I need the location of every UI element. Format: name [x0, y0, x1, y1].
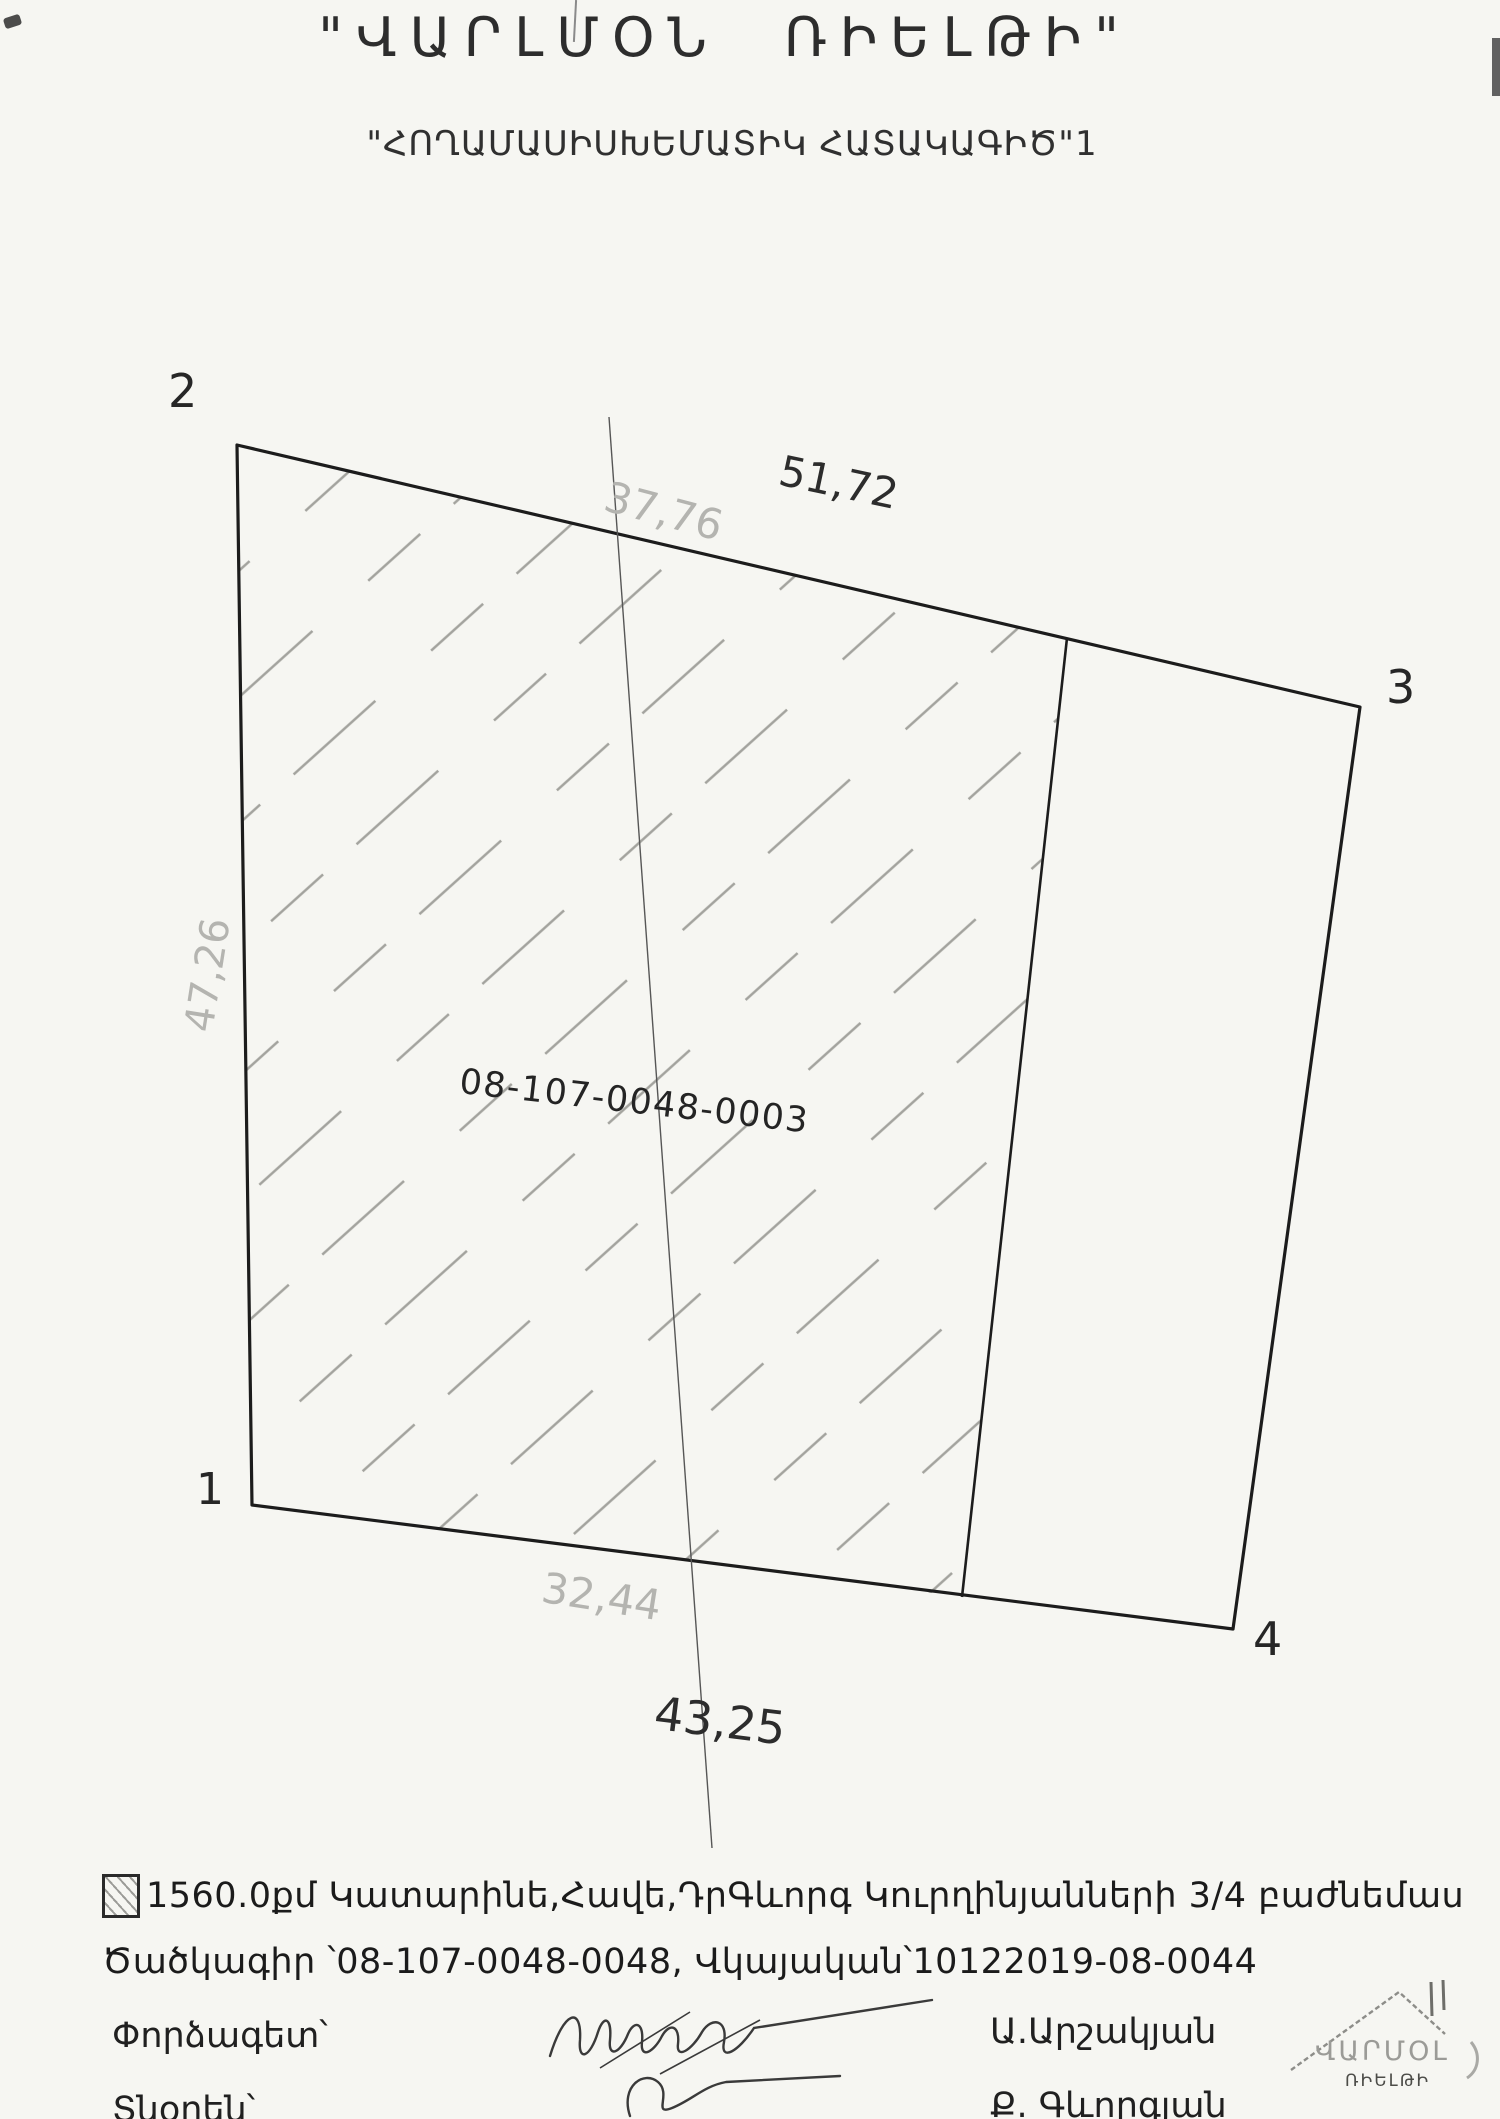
corner-label-2: 2 [168, 364, 197, 418]
expert-label: Փորձագետ՝ [112, 2016, 328, 2056]
expert-name: Ա.Արշակյան [990, 2012, 1216, 2052]
scanned-cadastral-plan-page: "ՎԱՐԼՄՕՆ ՌԻԵԼԹԻ" "ՀՈՂԱՄԱՍԻՍԽԵՄԱՏԻԿ ՀԱՏԱԿ… [0, 0, 1500, 2119]
director-label: Տնօրեն՝ [112, 2090, 255, 2119]
parcel-plan-drawing [0, 0, 1500, 2119]
legend-hatch-swatch [102, 1874, 140, 1918]
director-name: Ք. Գևորգյան [990, 2086, 1227, 2119]
corner-label-3: 3 [1386, 660, 1415, 714]
corner-label-1: 1 [196, 1464, 224, 1515]
legend-area-owners: 1560.0քմ Կատարինե,Հավե,ԴրԳևորգ Կուրղինյա… [146, 1876, 1464, 1916]
corner-label-4: 4 [1253, 1612, 1282, 1666]
logo-name-top: ՎԱՐՄՕԼ [1315, 2036, 1450, 2067]
legend-code-certificate: Ծածկագիր ՝08-107-0048-0048, Վկայական՝101… [102, 1942, 1257, 1982]
logo-name-bottom: ՌԻԵԼԹԻ [1345, 2071, 1430, 2091]
company-logo: ՎԱՐՄՕԼ ՌԻԵԼԹԻ [1285, 1976, 1500, 2119]
director-signature [600, 2068, 870, 2119]
